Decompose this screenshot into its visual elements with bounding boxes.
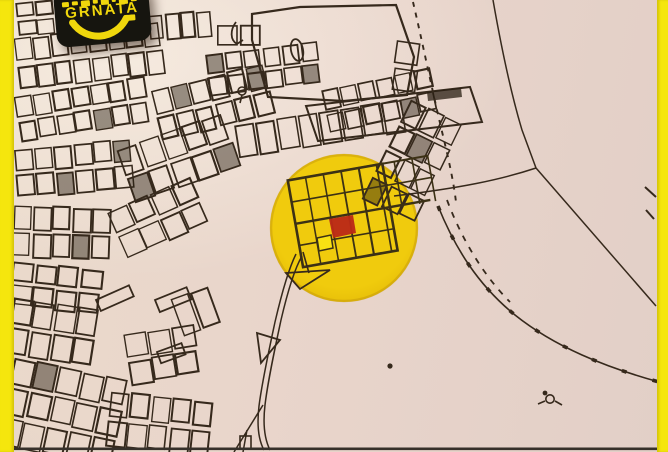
brand-logo: GRNATA: [53, 0, 153, 48]
survey-marker-icon: [538, 391, 562, 405]
bottom-border-line: [0, 448, 668, 451]
boundary-lines: [394, 0, 659, 382]
highlighted-cell: [317, 235, 333, 251]
right-frame-bar: [657, 0, 668, 452]
listing-map-image: GRNATA: [0, 0, 668, 452]
map-symbols: [387, 363, 562, 405]
left-frame-bar: [0, 0, 14, 452]
map-canvas: [0, 0, 668, 452]
